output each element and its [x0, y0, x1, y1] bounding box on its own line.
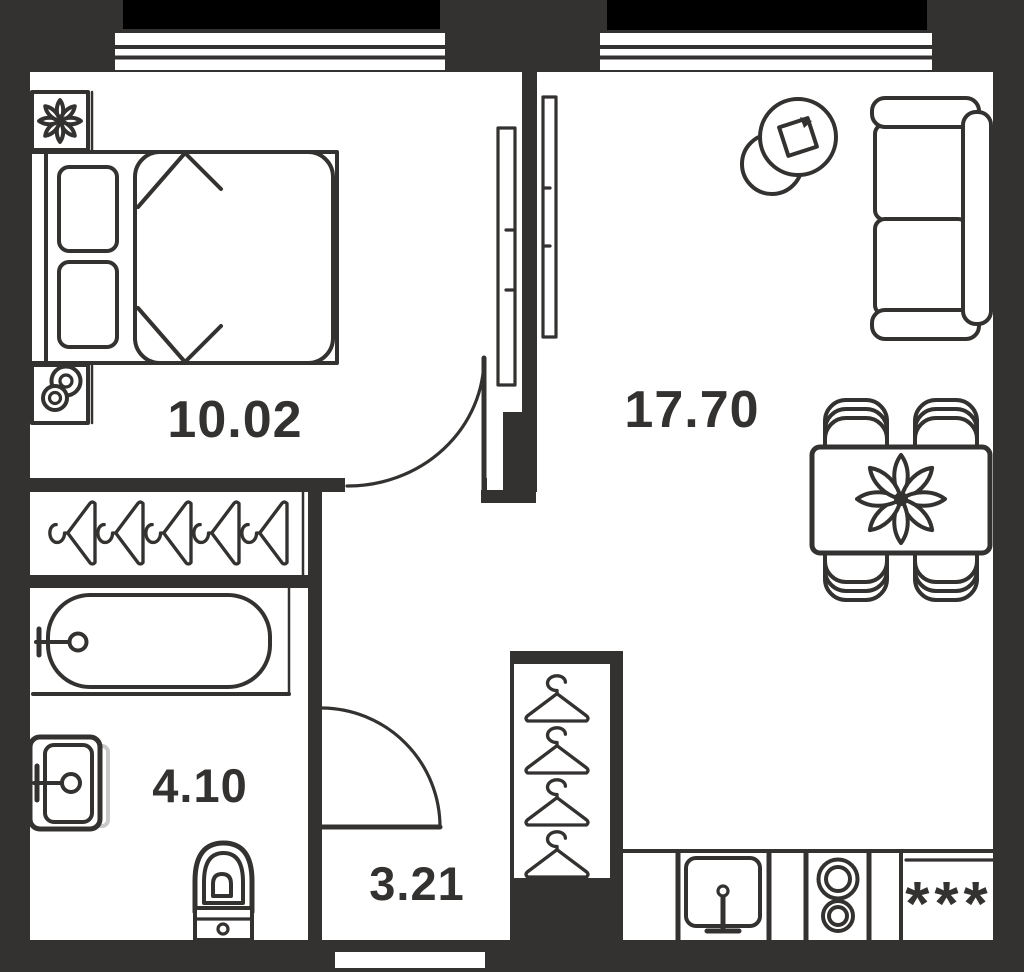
bedroom-area-label: 10.02: [167, 391, 302, 449]
floor-plan: 10.02: [0, 0, 1024, 972]
bathroom-floor: [30, 492, 308, 940]
bathtub: [33, 588, 289, 694]
bedroom-wardrobe-panel: [498, 128, 515, 385]
balcony-right: [607, 0, 927, 30]
living-wardrobe-panel: [543, 97, 556, 337]
basin-faucet-icon: [62, 774, 80, 792]
toilet: [195, 843, 252, 940]
kitchen-sink: [686, 858, 760, 931]
window-right: [600, 33, 932, 70]
nightstand-plant: [32, 92, 92, 150]
nightstand-lamp: [32, 365, 92, 423]
sofa-seat: [875, 219, 968, 315]
balcony-left: [123, 0, 440, 29]
window-left: [115, 33, 445, 70]
pillow: [59, 167, 117, 251]
double-bed: [30, 152, 337, 363]
sofa-seat: [875, 124, 968, 220]
sofa-backrest: [963, 112, 991, 324]
hallway-area-label: 3.21: [369, 857, 464, 910]
entrance-door: [335, 952, 485, 968]
fridge: ***: [905, 860, 993, 939]
sofa: [872, 98, 991, 339]
living-area-label: 17.70: [624, 381, 759, 439]
pillow: [59, 262, 117, 347]
decor-square: [779, 118, 817, 156]
flower-centerpiece-icon: [857, 455, 945, 543]
wash-basin: [30, 737, 100, 829]
plant-icon: [39, 100, 81, 142]
bathroom-area-label: 4.10: [152, 759, 247, 812]
floor-plan-page: 10.02: [0, 0, 1024, 972]
bedroom-door-opening: [345, 478, 484, 503]
fridge-freezer-symbol: ***: [905, 870, 992, 939]
